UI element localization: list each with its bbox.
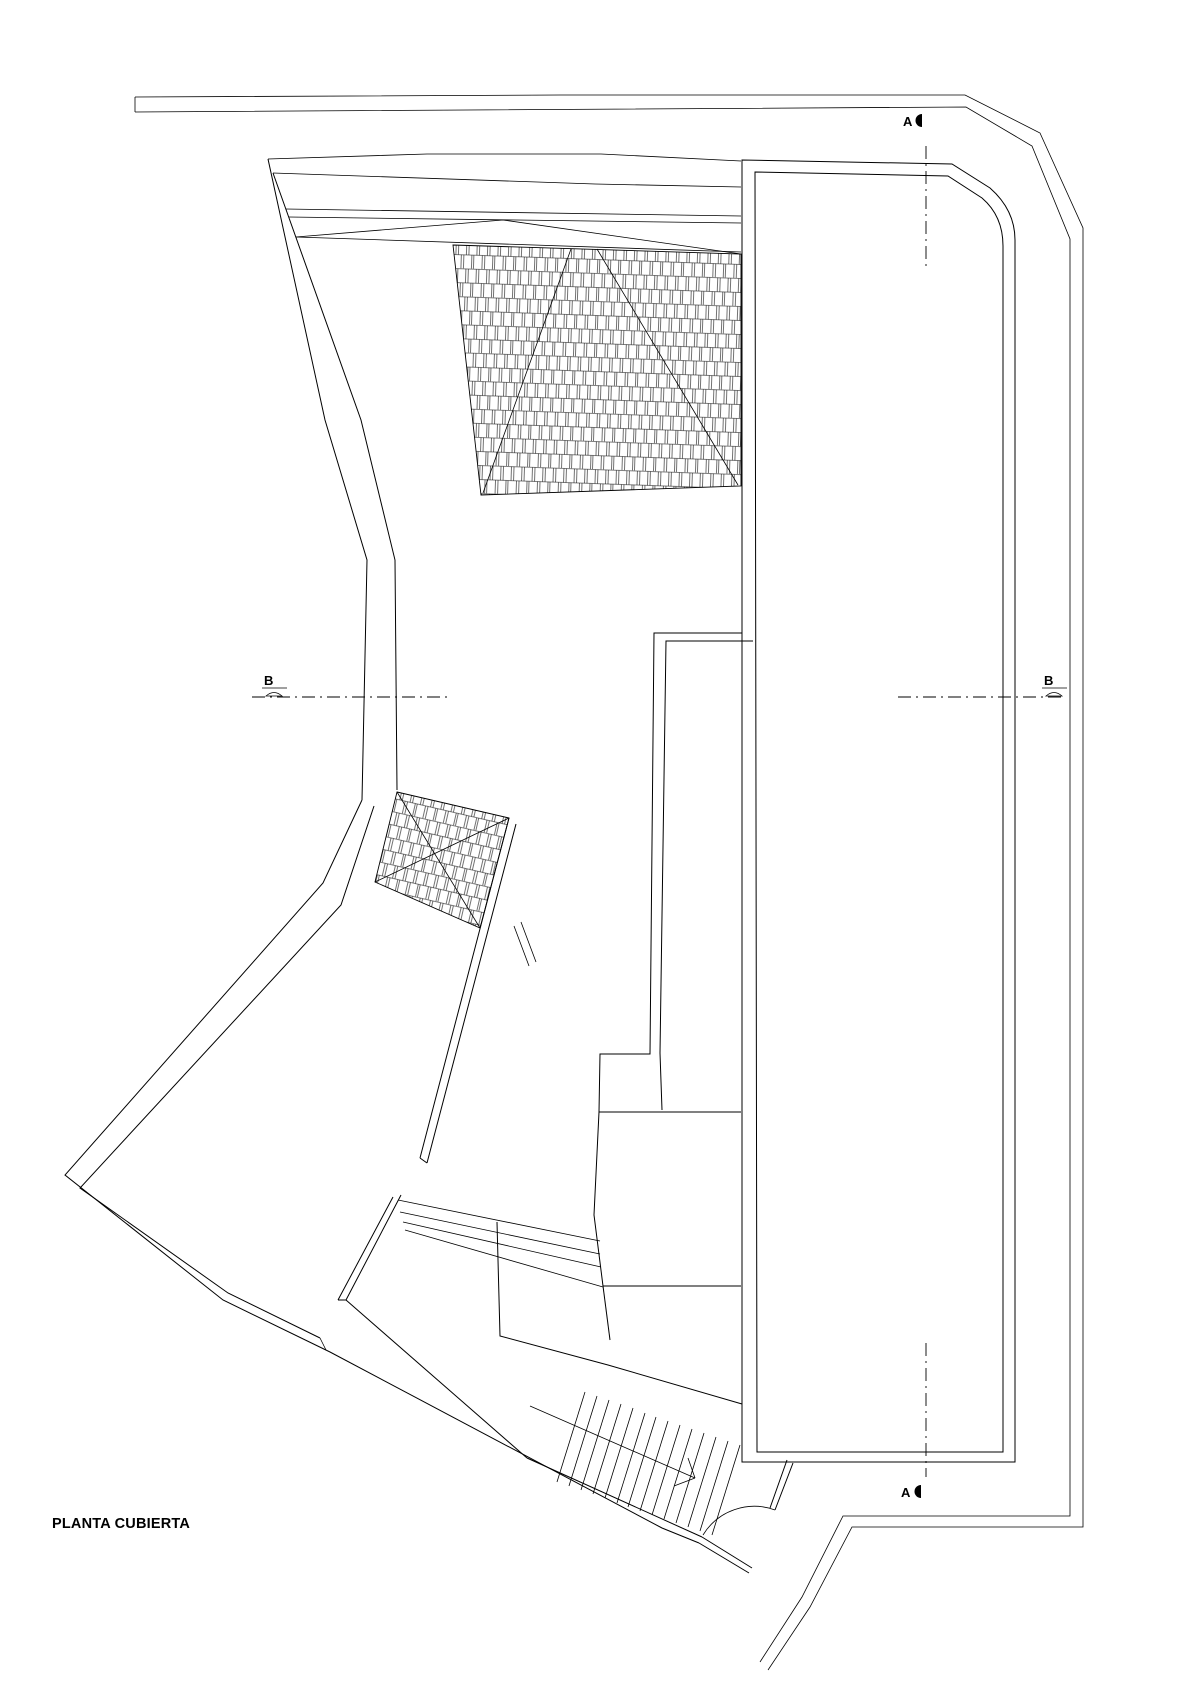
section-line-b: B B — [252, 673, 1067, 697]
main-tiled-roof — [453, 245, 741, 495]
stair-wing-walls — [338, 1195, 742, 1458]
section-cut-icon — [266, 693, 282, 697]
main-building — [742, 160, 1015, 1462]
door-swing-arc — [703, 1506, 775, 1535]
southwest-terrace — [65, 800, 699, 1543]
section-b-left-label: B — [264, 673, 273, 688]
narrow-roof-inner-outline — [660, 641, 753, 1110]
lower-roof-left-edge — [594, 1112, 603, 1286]
section-cut-icon — [1046, 693, 1062, 697]
stair-north-wall — [497, 1222, 742, 1404]
terrace-inner-wall — [80, 806, 374, 1338]
section-line-a: A A — [901, 114, 926, 1500]
section-cut-icon — [915, 1485, 922, 1498]
small-roof-tile-hatch — [375, 792, 509, 928]
terrace-outer-wall — [65, 800, 699, 1543]
building-inner-outline — [755, 172, 1003, 1452]
staircase — [527, 1392, 740, 1537]
west-wall-outer-line — [268, 159, 367, 800]
eave-line-2 — [273, 173, 741, 187]
northeast-terrace-wall-cap — [420, 1158, 427, 1163]
lower-roof-left-stub — [603, 1286, 610, 1340]
patio-wall-stub — [514, 922, 536, 966]
plan-canvas: A A B B PLANTA CUBIERTA — [0, 0, 1190, 1683]
stair-wing-roof-line-4 — [405, 1230, 603, 1287]
door-leaf — [699, 1537, 752, 1573]
eave-line-1 — [268, 154, 741, 161]
door-jamb-wall — [770, 1460, 793, 1510]
section-cut-icon — [916, 114, 922, 127]
stair-wing-roof-line-2 — [400, 1212, 600, 1254]
section-b-right-label: B — [1044, 673, 1053, 688]
stair-treads — [557, 1392, 740, 1535]
small-tiled-roof — [375, 792, 536, 1163]
drawing-title: PLANTA CUBIERTA — [52, 1516, 190, 1532]
narrow-roof-outer-outline — [599, 633, 742, 1112]
section-a-top-label: A — [903, 114, 913, 129]
section-a-bottom-label: A — [901, 1485, 911, 1500]
eave-line-3 — [286, 209, 741, 216]
stair-wing-roof-line-3 — [403, 1222, 601, 1267]
roof-plan-drawing: A A B B PLANTA CUBIERTA — [0, 0, 1190, 1683]
building-outer-outline — [742, 160, 1015, 1462]
stair-wing-west-wall — [338, 1195, 401, 1300]
courtyard-structures — [594, 633, 753, 1340]
stair-wing-roof-line-1 — [398, 1200, 600, 1241]
entrance-door — [699, 1460, 793, 1573]
